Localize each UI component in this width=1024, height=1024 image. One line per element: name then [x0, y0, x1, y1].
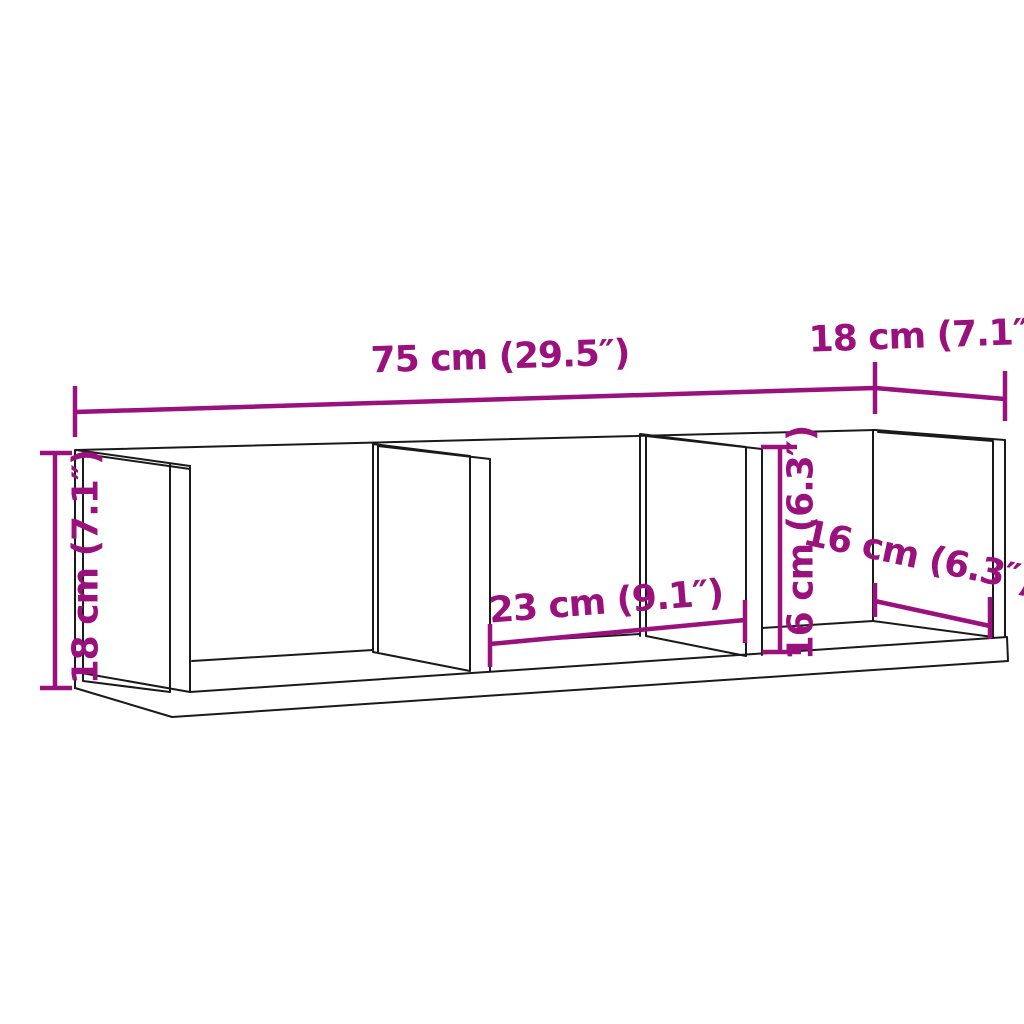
- diagram-canvas: 75 cm (29.5″) 18 cm (7.1″) 18 cm (7.1″) …: [0, 0, 1024, 1024]
- overall-depth-label: 18 cm (7.1″): [808, 311, 1024, 360]
- compartment-width-label: 23 cm (9.1″): [487, 572, 724, 631]
- dimension-labels: 75 cm (29.5″) 18 cm (7.1″) 18 cm (7.1″) …: [66, 311, 1024, 684]
- back-panel-top-edge: [76, 430, 875, 450]
- divider-1: [373, 444, 490, 671]
- overall-width-label: 75 cm (29.5″): [370, 333, 630, 382]
- shelf-drawing: [75, 430, 1008, 717]
- bottom-panel: [75, 637, 1008, 717]
- overall-height-label: 18 cm (7.1″): [66, 450, 107, 685]
- compartment-depth-dimension-line: [875, 583, 990, 639]
- compartment-depth-label: 16 cm (6.3″): [800, 513, 1024, 602]
- dimension-diagram: 75 cm (29.5″) 18 cm (7.1″) 18 cm (7.1″) …: [0, 0, 1024, 1024]
- overall-depth-dimension-line: [875, 371, 1005, 421]
